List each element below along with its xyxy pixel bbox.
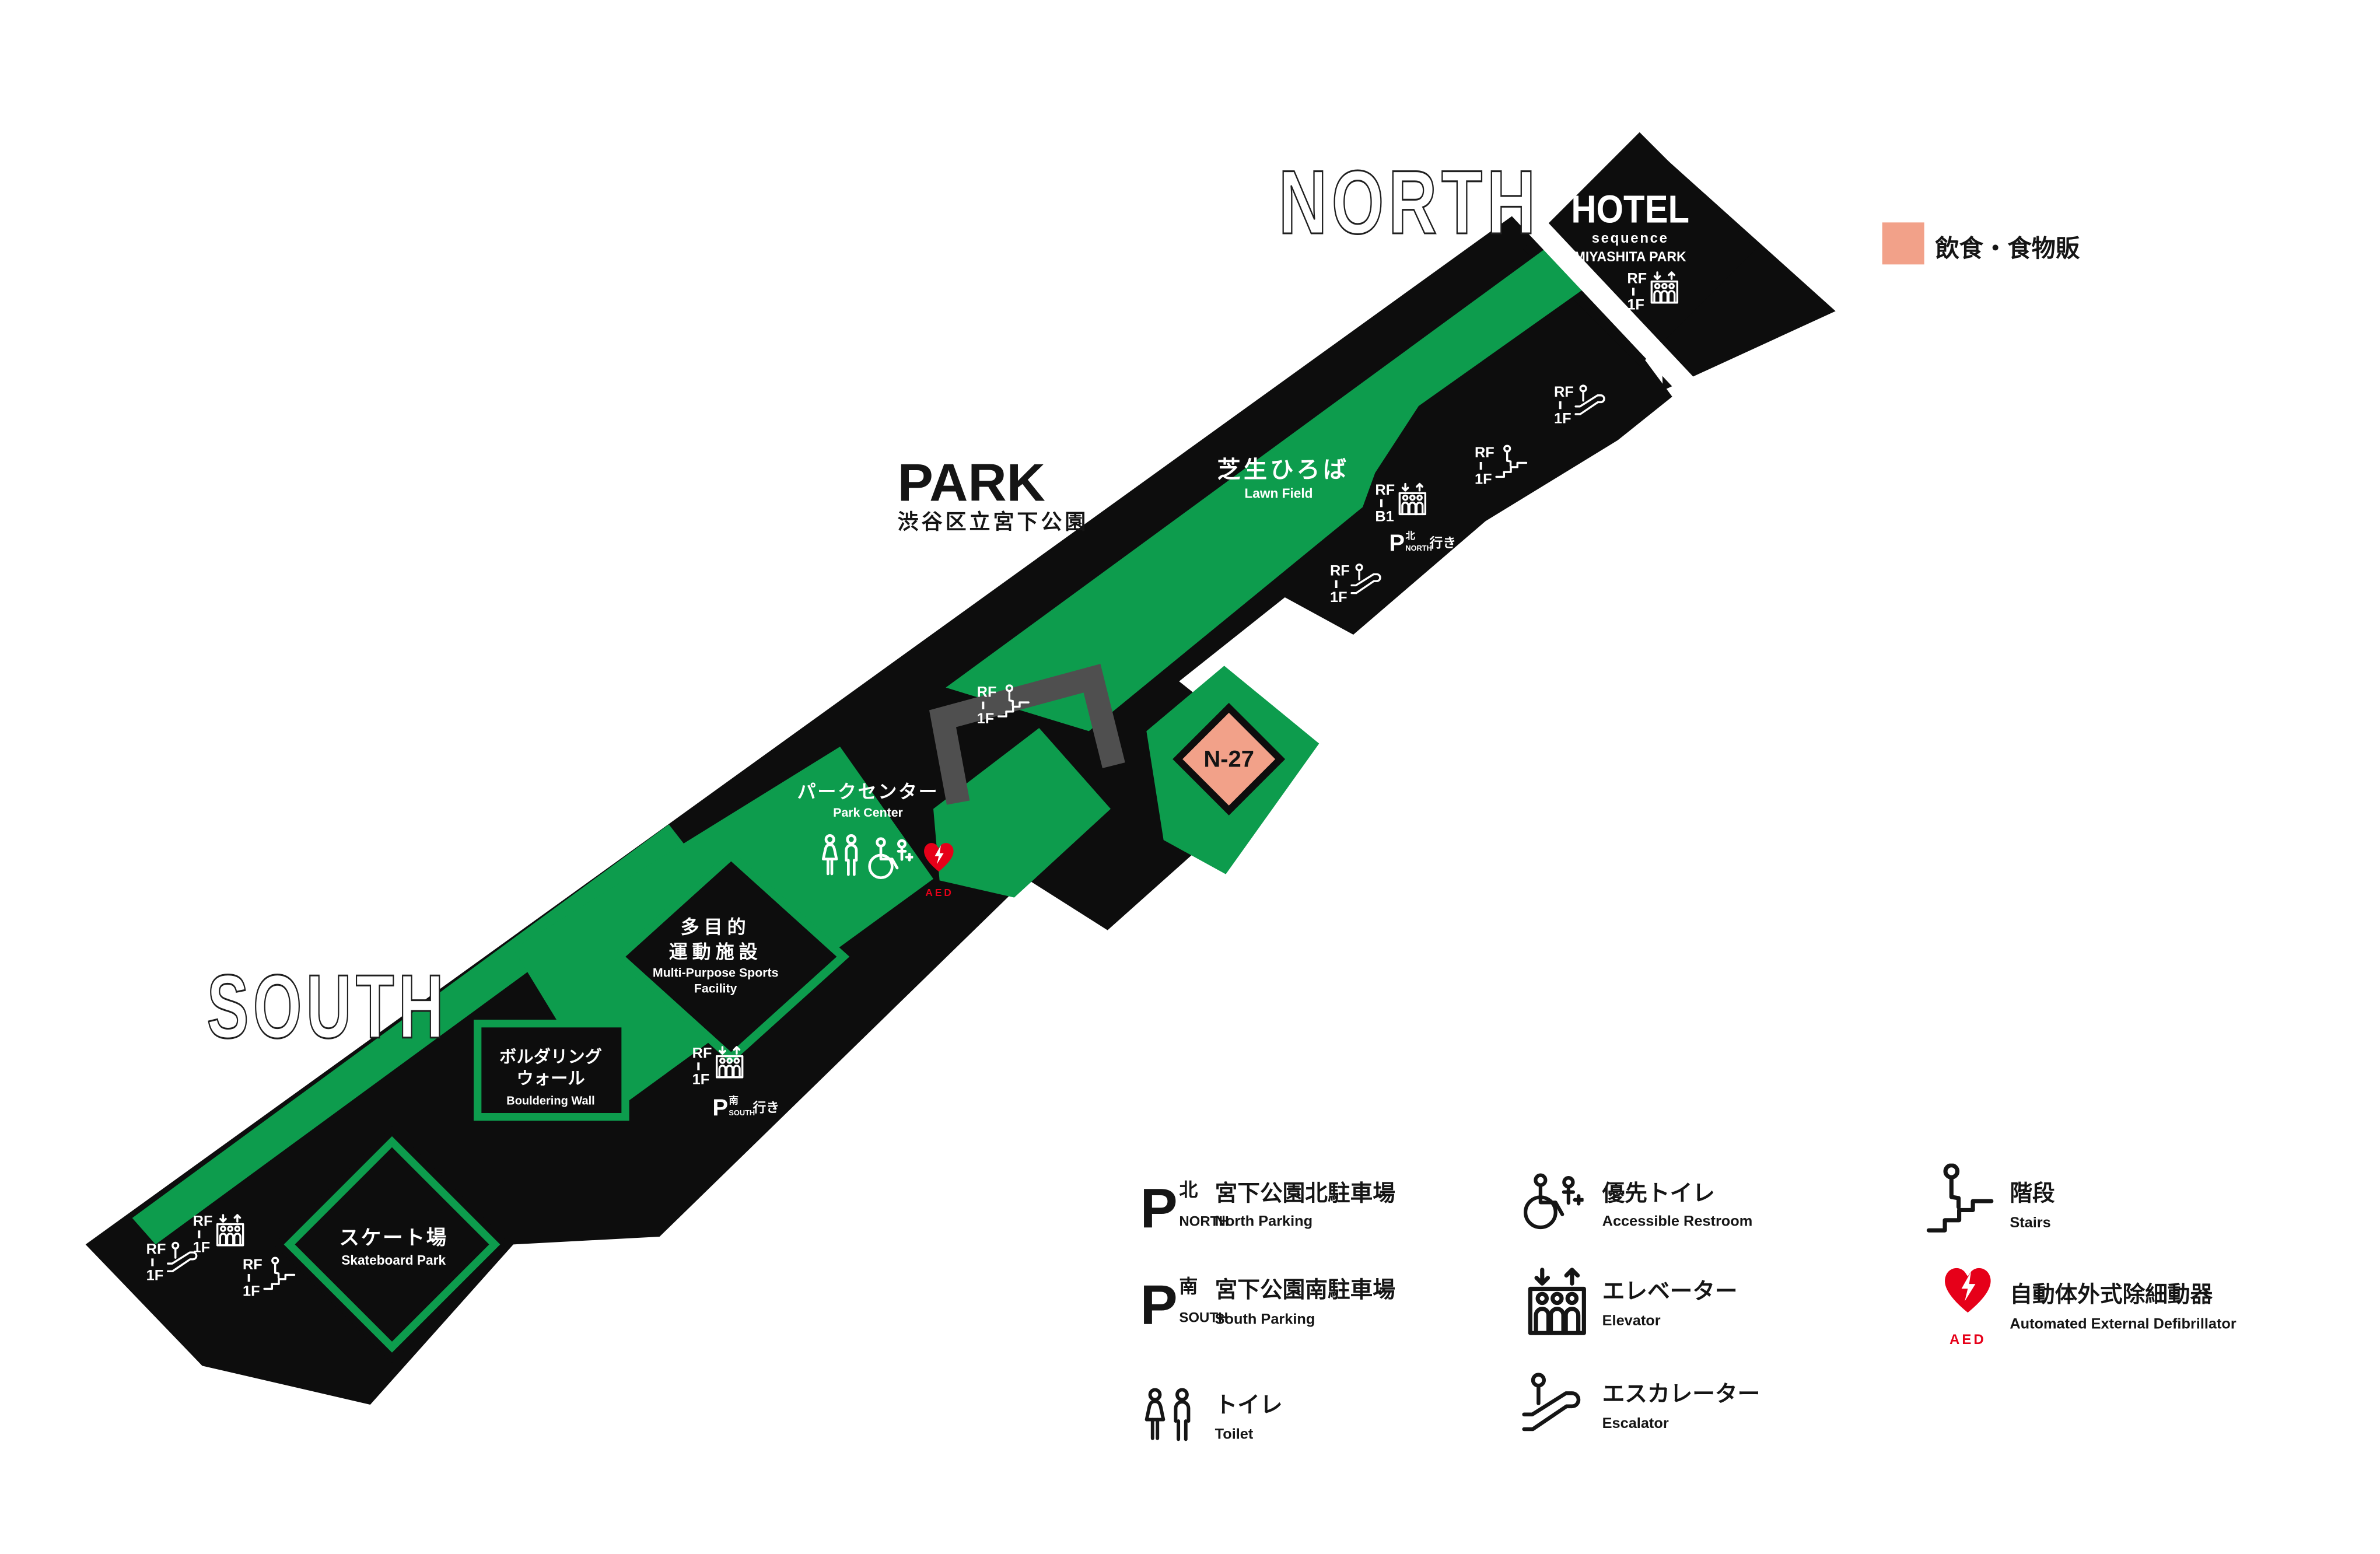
legend-item-south-parking: P 南 SOUTH 宮下公園南駐車場 South Parking <box>1140 1273 1395 1336</box>
legend-en: South Parking <box>1215 1311 1315 1327</box>
parking-letter: P <box>1140 1273 1178 1336</box>
escalator-icon <box>1524 1375 1578 1429</box>
park-title-jp: 渋谷区立宮下公園 <box>898 510 1086 534</box>
legend-jp: 自動体外式除細動器 <box>2010 1282 2213 1307</box>
legend-jp: 階段 <box>2010 1181 2055 1206</box>
parking-dir-en: NORTH <box>1405 544 1432 552</box>
floor-to-label: 1F <box>1627 297 1644 313</box>
parking-dir-jp: 南 <box>729 1094 738 1106</box>
floor-to-label: 1F <box>146 1268 164 1284</box>
legend-jp: 優先トイレ <box>1602 1181 1715 1206</box>
floor-from-label: RF <box>1330 563 1350 579</box>
parking-letter: P <box>1389 530 1405 556</box>
bouldering-jp1: ボルダリング <box>499 1046 602 1066</box>
food-legend: 飲食・食物販 <box>1882 222 2080 264</box>
parking-dir-jp: 北 <box>1179 1179 1198 1200</box>
floor-to-label: 1F <box>977 710 995 727</box>
sports-facility-en1: Multi-Purpose Sports <box>653 966 779 980</box>
sports-facility-en2: Facility <box>694 981 737 995</box>
floor-from-label: RF <box>1554 384 1574 400</box>
legend-item-stairs: 階段 Stairs <box>1929 1165 2055 1231</box>
parking-letter: P <box>1140 1177 1178 1240</box>
legend-item-escalator: エスカレーター Escalator <box>1524 1375 1760 1431</box>
aed-label: AED <box>925 887 954 898</box>
skate-park-label: スケート場 Skateboard Park <box>339 1227 448 1268</box>
legend-item-north-parking: P 北 NORTH 宮下公園北駐車場 North Parking <box>1140 1177 1395 1240</box>
legend-item-elevator: エレベーター Elevator <box>1530 1270 1737 1333</box>
parking-dir-jp: 北 <box>1405 530 1415 541</box>
stairs-icon <box>1929 1165 1991 1230</box>
legend-jp: 宮下公園南駐車場 <box>1215 1277 1395 1303</box>
legend-en: Stairs <box>2010 1214 2050 1231</box>
floor-from-label: RF <box>1475 444 1494 461</box>
bouldering-jp2: ウォール <box>516 1069 584 1088</box>
floor-to-label: B1 <box>1375 508 1394 524</box>
parking-dir-en: SOUTH <box>729 1108 755 1117</box>
legend-en: Accessible Restroom <box>1602 1213 1753 1229</box>
lawn-field-jp: 芝生ひろば <box>1217 457 1350 483</box>
aed-icon <box>1945 1268 1991 1312</box>
n27-label: N-27 <box>1203 747 1254 772</box>
legend-item-aed: AED 自動体外式除細動器 Automated External Defibri… <box>1945 1268 2236 1347</box>
sports-facility-jp1: 多目的 <box>681 916 751 937</box>
floor-from-label: RF <box>193 1213 213 1229</box>
floor-from-label: RF <box>1375 482 1395 498</box>
hotel-sub: MIYASHITA PARK <box>1574 249 1687 265</box>
floor-from-label: RF <box>692 1045 712 1061</box>
legend-jp: 宮下公園北駐車場 <box>1215 1181 1395 1206</box>
aed-label: AED <box>1950 1332 1986 1347</box>
legend-item-accessible-restroom: 優先トイレ Accessible Restroom <box>1525 1175 1752 1230</box>
floor-from-label: RF <box>146 1241 166 1257</box>
hotel-title: HOTEL sequence MIYASHITA PARK <box>1571 188 1689 265</box>
skate-park-en: Skateboard Park <box>341 1252 446 1268</box>
floor-to-label: 1F <box>1554 410 1571 426</box>
sports-facility-jp2: 運動施設 <box>669 942 762 963</box>
park-title-en: PARK <box>898 454 1045 513</box>
legend-en: Escalator <box>1602 1415 1669 1431</box>
legend-en: North Parking <box>1215 1213 1312 1229</box>
compass-south-label: SOUTH <box>207 956 448 1057</box>
floor-from-label: RF <box>243 1256 262 1273</box>
hotel-name: HOTEL <box>1571 188 1689 231</box>
toilet-icon <box>1147 1389 1189 1439</box>
legend-en: Elevator <box>1602 1312 1661 1329</box>
legend-jp: トイレ <box>1215 1392 1283 1417</box>
floor-to-label: 1F <box>692 1072 710 1088</box>
parking-dir-jp: 南 <box>1179 1276 1198 1297</box>
skate-park-jp: スケート場 <box>339 1227 448 1249</box>
floor-to-label: 1F <box>1475 471 1492 487</box>
hotel-brand: sequence <box>1592 230 1669 246</box>
legend-jp: エスカレーター <box>1602 1382 1760 1407</box>
compass-north-label: NORTH <box>1279 152 1540 253</box>
accessible-restroom-icon <box>1525 1175 1583 1227</box>
floor-to-label: 1F <box>243 1283 260 1299</box>
food-legend-label: 飲食・食物販 <box>1935 235 2080 262</box>
park-center-en: Park Center <box>833 806 903 820</box>
park-title: PARK 渋谷区立宮下公園 <box>898 454 1086 534</box>
lawn-field-en: Lawn Field <box>1244 485 1312 501</box>
floor-to-label: 1F <box>1330 589 1347 605</box>
legend-en: Automated External Defibrillator <box>2010 1315 2236 1332</box>
bouldering-en: Bouldering Wall <box>506 1094 594 1107</box>
parking-letter: P <box>712 1095 728 1121</box>
floor-to-label: 1F <box>193 1240 211 1256</box>
legend-item-toilet: トイレ Toilet <box>1147 1389 1283 1442</box>
parking-bound-label: 行き <box>752 1100 779 1115</box>
miyashita-park-map: N-27 NORTH SOUTH PARK 渋谷区立宮下公園 HOTEL seq… <box>0 0 2380 1554</box>
floor-from-label: RF <box>1627 270 1647 286</box>
floor-from-label: RF <box>977 684 997 701</box>
elevator-icon <box>1530 1270 1584 1333</box>
legend: P 北 NORTH 宮下公園北駐車場 North Parking P 南 SOU… <box>1140 1165 2236 1443</box>
park-center-jp: パークセンター <box>797 781 939 802</box>
parking-bound-label: 行き <box>1429 535 1456 551</box>
legend-jp: エレベーター <box>1602 1279 1738 1304</box>
food-legend-swatch <box>1882 222 1924 264</box>
legend-en: Toilet <box>1215 1426 1254 1443</box>
map-strip: N-27 <box>86 132 1836 1405</box>
